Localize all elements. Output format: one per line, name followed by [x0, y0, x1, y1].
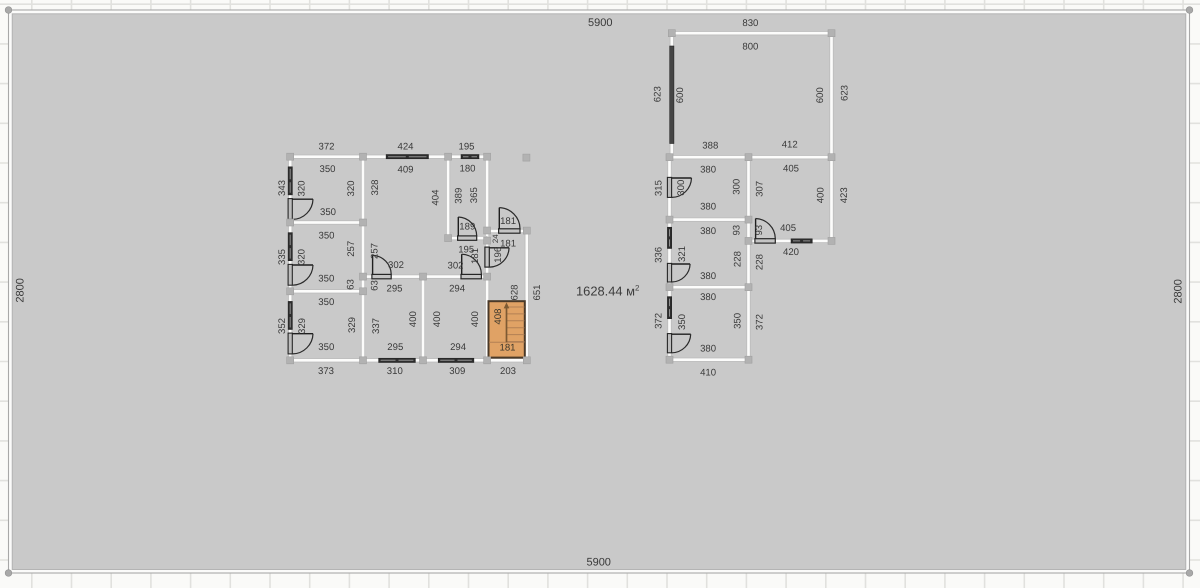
svg-text:404: 404: [430, 189, 441, 206]
svg-text:400: 400: [408, 311, 419, 327]
svg-text:181: 181: [500, 216, 516, 227]
svg-text:5900: 5900: [588, 17, 612, 29]
svg-text:335: 335: [277, 249, 288, 265]
svg-text:400: 400: [432, 311, 443, 327]
svg-text:180: 180: [459, 164, 475, 175]
svg-text:350: 350: [318, 231, 334, 242]
svg-text:410: 410: [700, 368, 716, 379]
svg-text:343: 343: [277, 180, 288, 196]
svg-text:5900: 5900: [586, 556, 610, 568]
svg-text:181: 181: [499, 342, 515, 353]
svg-text:300: 300: [731, 179, 742, 195]
svg-text:300: 300: [676, 180, 687, 196]
svg-text:336: 336: [654, 247, 665, 263]
svg-text:408: 408: [493, 309, 504, 325]
svg-text:380: 380: [700, 343, 716, 354]
svg-text:380: 380: [700, 292, 716, 303]
svg-text:365: 365: [469, 187, 480, 203]
svg-text:93: 93: [731, 225, 742, 236]
svg-text:307: 307: [755, 181, 766, 197]
svg-text:328: 328: [370, 179, 381, 195]
svg-text:320: 320: [297, 180, 308, 196]
svg-text:295: 295: [387, 342, 403, 353]
svg-text:800: 800: [742, 42, 758, 53]
svg-text:412: 412: [782, 140, 798, 151]
svg-text:350: 350: [318, 274, 334, 285]
svg-text:380: 380: [700, 202, 716, 213]
svg-text:628: 628: [509, 284, 520, 300]
svg-text:320: 320: [346, 180, 357, 196]
svg-text:623: 623: [652, 86, 663, 102]
svg-text:380: 380: [700, 226, 716, 237]
svg-text:228: 228: [733, 251, 744, 267]
svg-text:315: 315: [654, 180, 665, 196]
svg-text:302: 302: [447, 261, 463, 272]
svg-text:600: 600: [675, 87, 686, 103]
svg-text:181: 181: [470, 248, 481, 264]
svg-text:373: 373: [318, 366, 334, 377]
svg-text:228: 228: [755, 254, 766, 270]
svg-text:423: 423: [839, 187, 850, 203]
svg-text:295: 295: [386, 283, 402, 294]
svg-text:196: 196: [493, 247, 504, 263]
svg-text:350: 350: [318, 297, 334, 308]
svg-text:623: 623: [840, 85, 851, 101]
svg-text:420: 420: [783, 247, 799, 258]
svg-text:294: 294: [450, 342, 467, 353]
svg-text:329: 329: [347, 317, 358, 333]
svg-text:309: 309: [449, 366, 465, 377]
svg-text:405: 405: [783, 163, 799, 174]
svg-text:600: 600: [815, 87, 826, 103]
svg-text:195: 195: [458, 142, 474, 153]
svg-text:329: 329: [297, 318, 308, 334]
svg-text:1628.44 м2: 1628.44 м2: [576, 283, 639, 298]
svg-text:350: 350: [320, 207, 336, 218]
svg-text:321: 321: [677, 246, 688, 262]
svg-text:63: 63: [370, 280, 381, 291]
svg-text:350: 350: [318, 342, 334, 353]
svg-text:2800: 2800: [15, 278, 27, 302]
svg-text:352: 352: [277, 318, 288, 334]
svg-text:380: 380: [700, 165, 716, 176]
svg-text:257: 257: [346, 241, 357, 257]
svg-text:63: 63: [345, 279, 356, 290]
svg-text:400: 400: [816, 187, 827, 203]
svg-text:302: 302: [388, 260, 404, 271]
svg-text:320: 320: [297, 249, 308, 265]
svg-text:350: 350: [677, 314, 688, 330]
svg-text:651: 651: [532, 284, 543, 300]
svg-text:424: 424: [397, 142, 414, 153]
svg-text:380: 380: [700, 271, 716, 282]
svg-text:257: 257: [369, 243, 380, 259]
svg-text:2800: 2800: [1172, 279, 1184, 303]
svg-text:405: 405: [780, 223, 796, 234]
svg-text:372: 372: [654, 313, 665, 329]
svg-text:337: 337: [371, 318, 382, 334]
svg-text:830: 830: [742, 18, 758, 29]
svg-text:409: 409: [397, 165, 413, 176]
svg-text:294: 294: [449, 283, 466, 294]
svg-text:388: 388: [702, 140, 718, 151]
svg-text:400: 400: [470, 311, 481, 327]
svg-text:350: 350: [319, 164, 335, 175]
svg-text:24: 24: [491, 234, 500, 243]
svg-text:93: 93: [754, 225, 765, 236]
svg-text:310: 310: [387, 366, 403, 377]
svg-text:372: 372: [318, 142, 334, 153]
svg-text:350: 350: [733, 313, 744, 329]
svg-text:203: 203: [500, 366, 516, 377]
svg-text:389: 389: [454, 188, 465, 204]
svg-text:372: 372: [755, 314, 766, 330]
svg-text:189: 189: [459, 222, 475, 233]
